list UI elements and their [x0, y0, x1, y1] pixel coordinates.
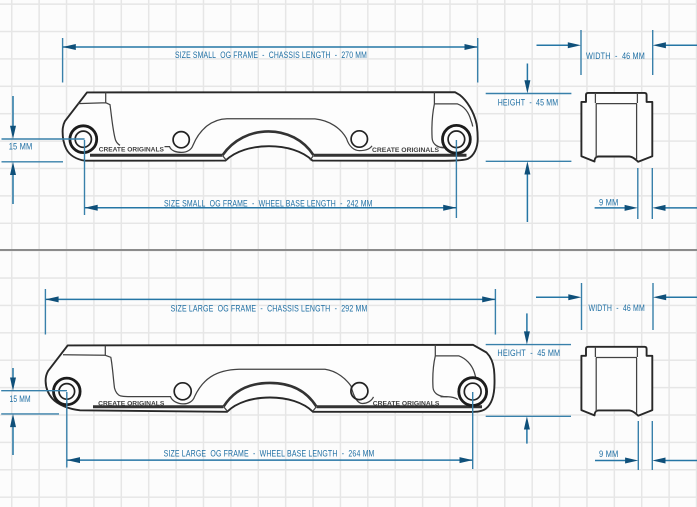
svg-text:HEIGHT - 45 MM: HEIGHT - 45 MM — [497, 348, 560, 358]
svg-text:SIZE LARGE OG FRAME - WHEEL: SIZE LARGE OG FRAME - WHEEL BASE LENGTH … — [164, 448, 375, 458]
svg-text:WIDTH - 46 MM: WIDTH - 46 MM — [589, 303, 645, 313]
svg-text:SIZE SMALL OG FRAME - CHASS: SIZE SMALL OG FRAME - CHASSIS LENGTH - 2… — [175, 50, 367, 60]
svg-text:CREATE ORIGINALS: CREATE ORIGINALS — [99, 147, 165, 154]
svg-text:15 MM: 15 MM — [10, 394, 31, 404]
svg-text:15 MM: 15 MM — [9, 141, 33, 151]
svg-text:9 MM: 9 MM — [599, 197, 619, 207]
svg-text:SIZE LARGE OG FRAME - CHASS: SIZE LARGE OG FRAME - CHASSIS LENGTH - 2… — [171, 304, 368, 314]
svg-text:CREATE ORIGINALS: CREATE ORIGINALS — [98, 400, 165, 407]
svg-text:SIZE SMALL OG FRAME - WHEEL: SIZE SMALL OG FRAME - WHEEL BASE LENGTH … — [164, 198, 373, 208]
svg-text:9 MM: 9 MM — [599, 449, 619, 459]
svg-text:CREATE ORIGINALS: CREATE ORIGINALS — [372, 147, 439, 154]
svg-text:CREATE ORIGINALS: CREATE ORIGINALS — [373, 401, 440, 408]
svg-text:HEIGHT - 45 MM: HEIGHT - 45 MM — [498, 97, 559, 107]
svg-text:WIDTH - 46 MM: WIDTH - 46 MM — [586, 51, 645, 61]
